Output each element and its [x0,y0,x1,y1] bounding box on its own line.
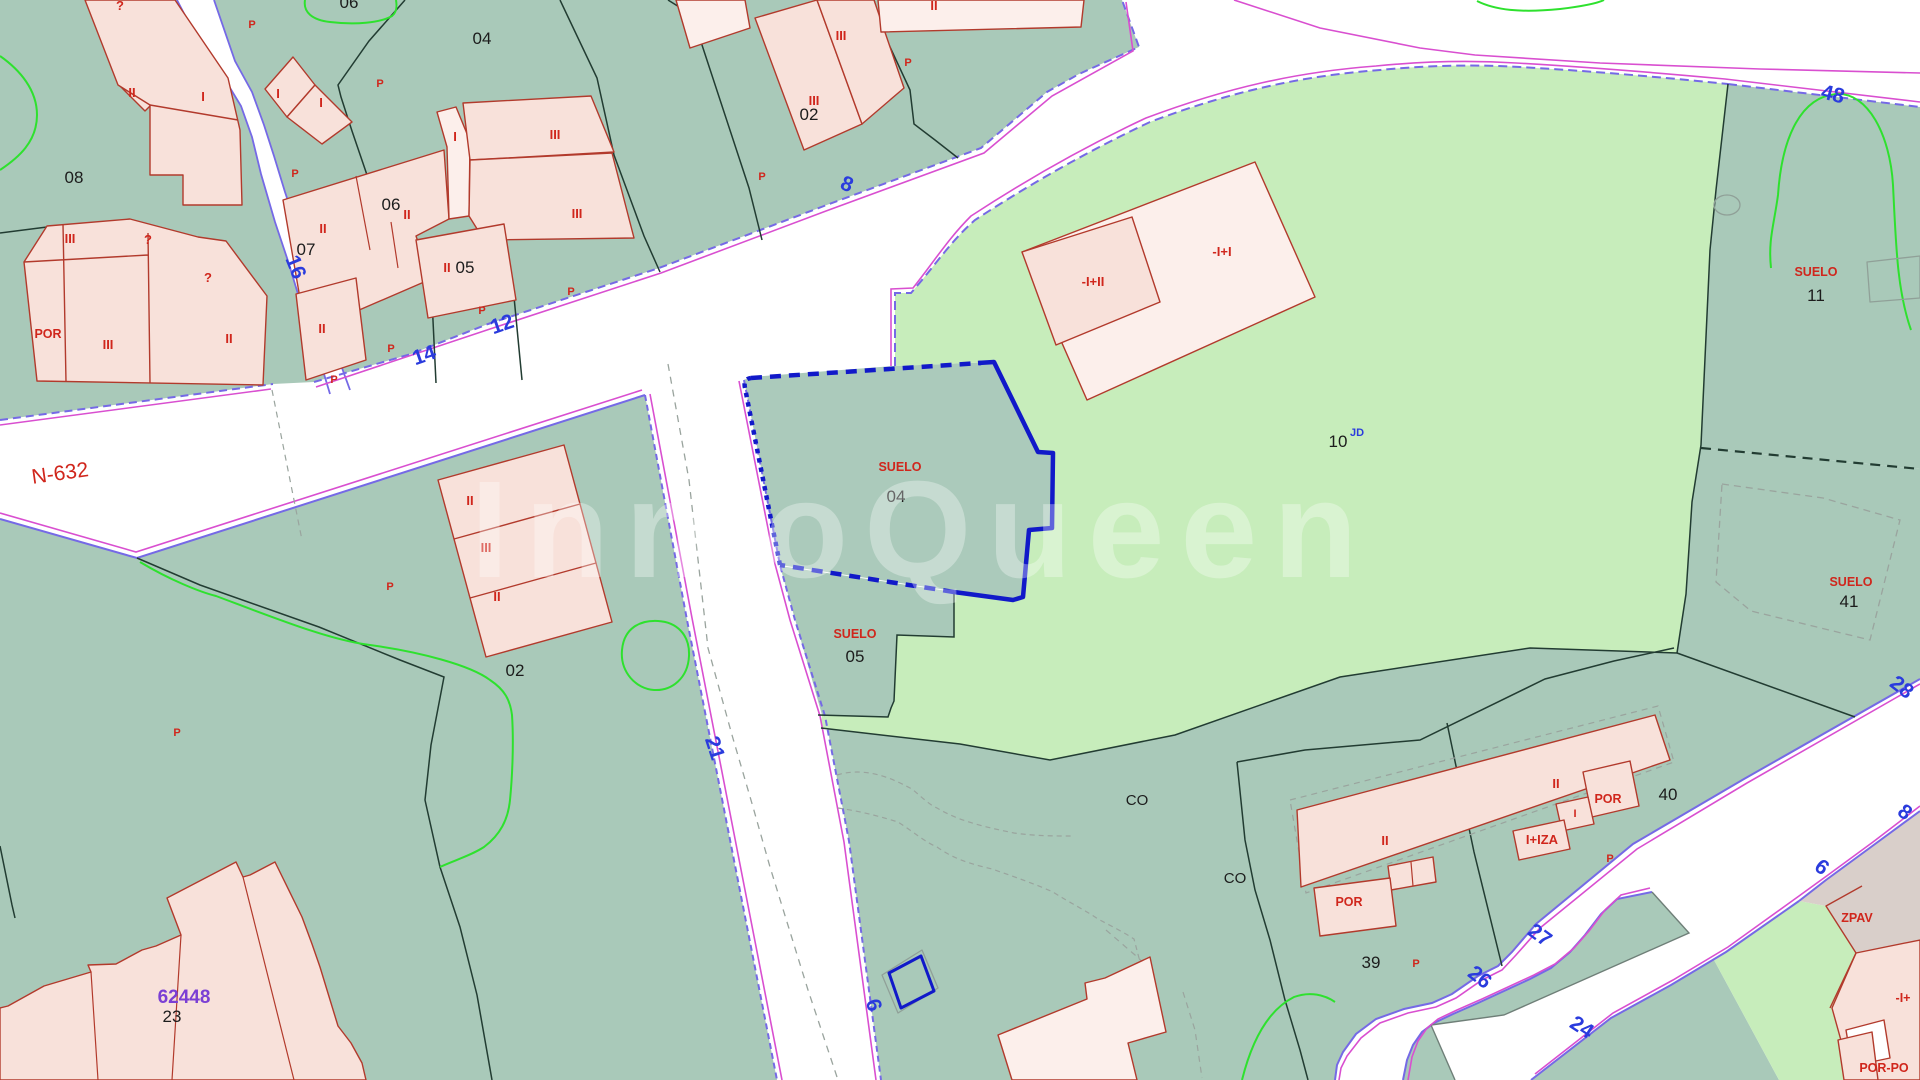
svg-text:InmoQueen: InmoQueen [470,453,1373,607]
svg-text:I: I [201,89,205,104]
svg-text:ZPAV: ZPAV [1841,911,1873,925]
svg-text:I+IZA: I+IZA [1526,832,1559,847]
svg-text:I: I [276,86,280,101]
svg-text:P: P [567,286,574,298]
svg-text:II: II [225,331,232,346]
svg-text:-I+: -I+ [1896,991,1911,1005]
svg-text:JD: JD [1350,427,1364,439]
svg-text:P: P [904,57,911,69]
svg-text:III: III [572,206,583,221]
svg-text:CO: CO [1224,870,1247,887]
svg-text:I: I [319,95,323,110]
svg-text:II: II [403,207,410,222]
svg-text:P: P [478,305,485,317]
svg-text:II: II [1552,776,1559,791]
svg-text:?: ? [116,0,124,13]
svg-text:III: III [550,127,561,142]
svg-text:II: II [443,260,450,275]
svg-text:III: III [103,337,114,352]
svg-text:II: II [319,221,326,236]
svg-text:06: 06 [382,195,401,214]
svg-text:10: 10 [1329,432,1348,451]
svg-text:P: P [387,343,394,355]
svg-text:P: P [291,168,298,180]
svg-text:05: 05 [846,647,865,666]
svg-text:-I+II: -I+II [1082,274,1105,289]
svg-text:III: III [836,28,847,43]
svg-text:CO: CO [1126,792,1149,809]
svg-text:P: P [386,581,393,593]
svg-text:II: II [1381,833,1388,848]
svg-text:P: P [330,374,337,386]
svg-text:11: 11 [1807,286,1825,305]
svg-text:23: 23 [163,1007,182,1026]
svg-text:POR-PO: POR-PO [1859,1061,1909,1075]
svg-text:II: II [930,0,937,13]
svg-text:POR: POR [1335,895,1362,909]
svg-text:?: ? [204,270,212,285]
svg-text:02: 02 [800,105,819,124]
svg-text:POR: POR [34,327,61,341]
svg-text:05: 05 [456,258,475,277]
svg-text:41: 41 [1840,592,1859,611]
svg-text:III: III [65,231,76,246]
svg-text:P: P [1412,958,1419,970]
svg-text:02: 02 [506,661,525,680]
svg-text:?: ? [144,232,152,247]
svg-text:P: P [1606,853,1613,865]
svg-text:P: P [376,78,383,90]
svg-text:POR: POR [1594,792,1621,806]
svg-text:62448: 62448 [158,987,211,1008]
svg-text:II: II [318,321,325,336]
svg-text:39: 39 [1362,953,1381,972]
svg-text:04: 04 [473,29,492,48]
svg-text:-I+I: -I+I [1212,244,1231,259]
svg-text:P: P [173,727,180,739]
svg-text:06: 06 [340,0,359,12]
svg-text:SUELO: SUELO [833,627,876,641]
svg-text:I: I [1573,808,1576,820]
svg-text:SUELO: SUELO [1829,575,1872,589]
svg-text:SUELO: SUELO [1794,265,1837,279]
svg-text:40: 40 [1659,785,1678,804]
svg-text:P: P [758,171,765,183]
svg-text:I: I [453,129,457,144]
svg-text:P: P [248,19,255,31]
svg-text:II: II [128,85,135,100]
svg-text:08: 08 [65,168,84,187]
